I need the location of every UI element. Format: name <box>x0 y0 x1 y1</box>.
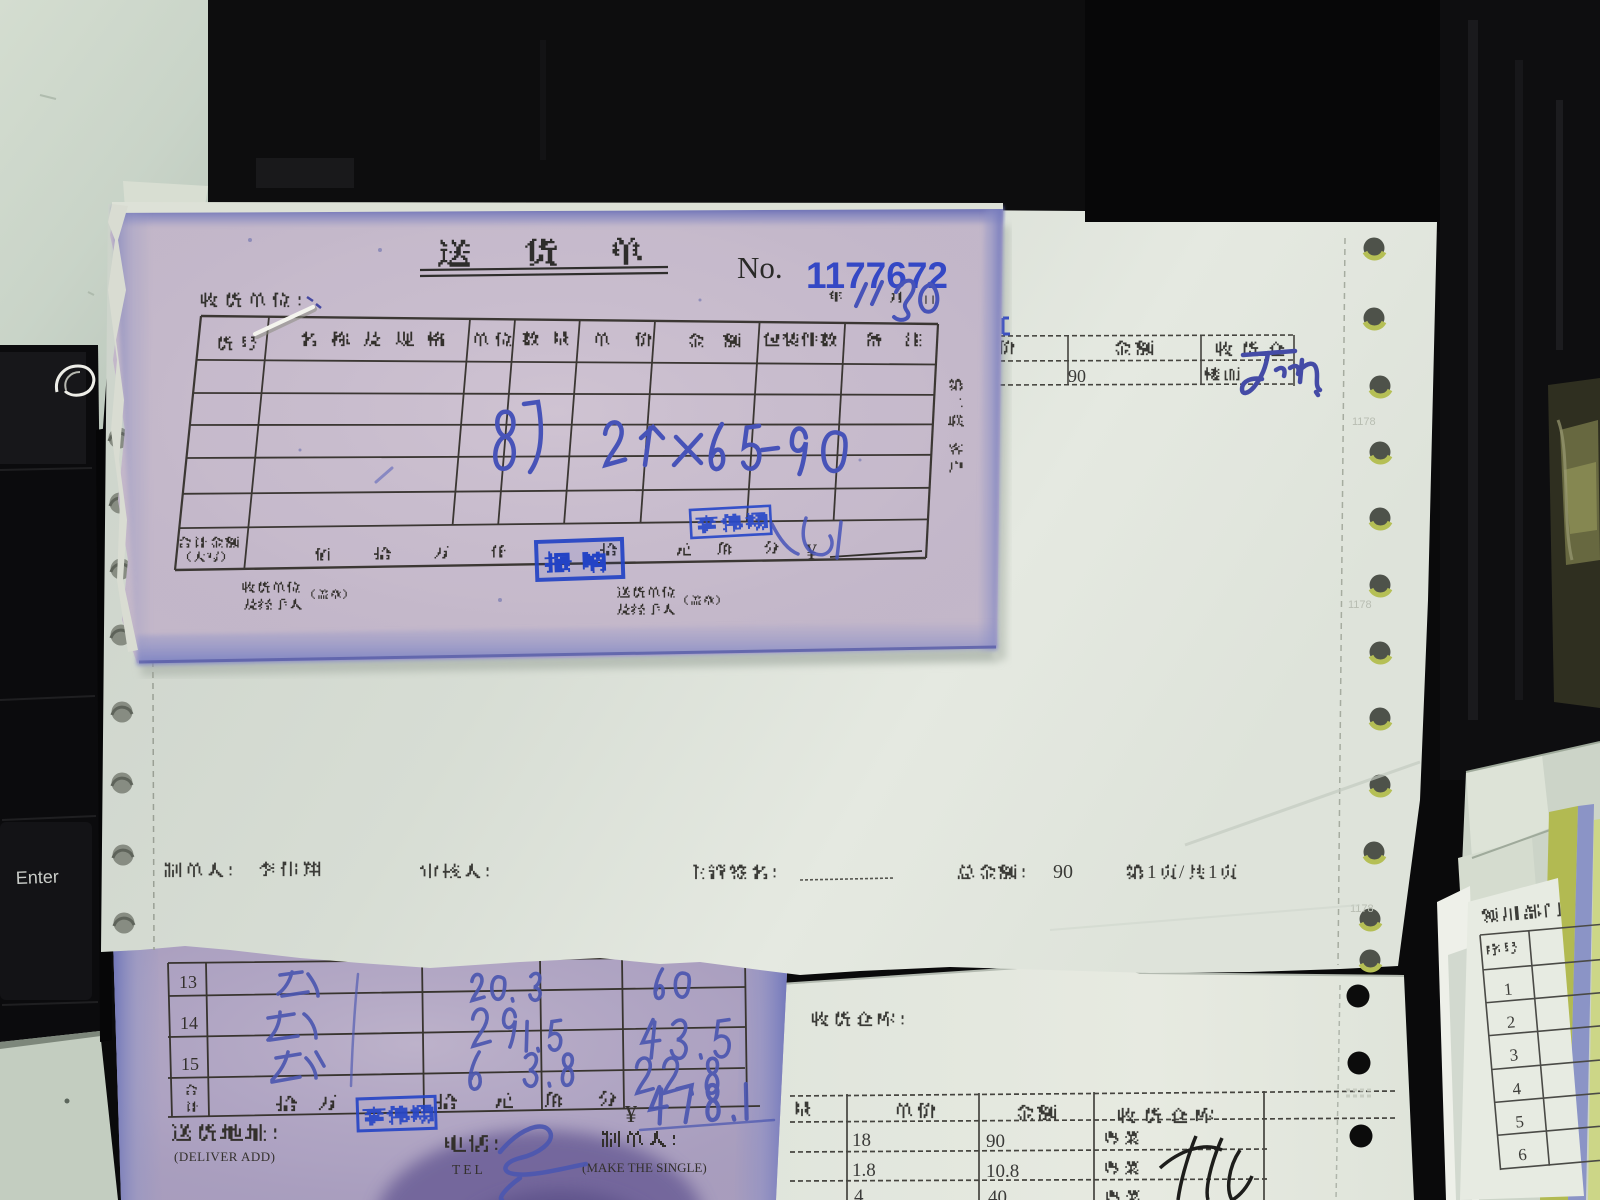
svg-text:1178: 1178 <box>1352 416 1376 428</box>
svg-text:90: 90 <box>1053 861 1073 883</box>
svg-text:No.: No. <box>737 250 783 285</box>
svg-text:14: 14 <box>180 1013 198 1033</box>
svg-text:6: 6 <box>1517 1145 1527 1165</box>
svg-text:Enter: Enter <box>15 867 59 888</box>
svg-text:10.8: 10.8 <box>986 1161 1019 1182</box>
svg-text:90: 90 <box>1068 366 1086 386</box>
svg-text:1: 1 <box>1208 862 1218 883</box>
svg-text:15: 15 <box>181 1054 199 1074</box>
svg-text:1: 1 <box>1503 979 1513 999</box>
svg-text:5: 5 <box>1515 1112 1525 1132</box>
svg-text:1.8: 1.8 <box>852 1160 876 1181</box>
svg-text:1178: 1178 <box>1348 599 1372 611</box>
svg-text:4: 4 <box>854 1186 864 1200</box>
svg-text:40: 40 <box>988 1187 1007 1200</box>
svg-text:90: 90 <box>986 1131 1005 1152</box>
svg-text:(MAKE THE SINGLE): (MAKE THE SINGLE) <box>582 1160 707 1175</box>
svg-text:¥: ¥ <box>625 1102 637 1128</box>
svg-text:TEL: TEL <box>452 1162 486 1177</box>
svg-text:/: / <box>1179 862 1185 883</box>
svg-text:2: 2 <box>1506 1012 1516 1032</box>
svg-text:3: 3 <box>1509 1045 1519 1065</box>
svg-text:13: 13 <box>179 972 197 992</box>
svg-text:(DELIVER ADD): (DELIVER ADD) <box>174 1149 275 1164</box>
svg-text:18: 18 <box>852 1130 871 1151</box>
svg-text:1: 1 <box>1147 862 1157 883</box>
